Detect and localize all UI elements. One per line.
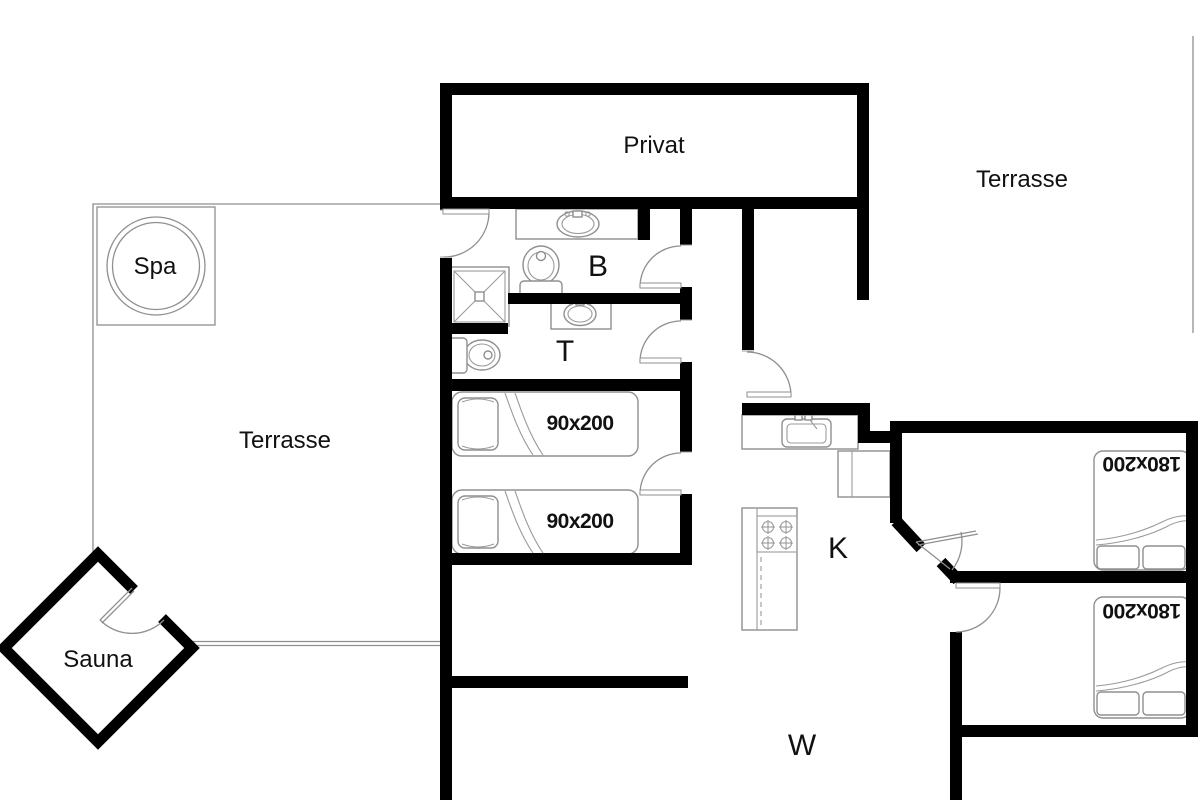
bathroom-door [640, 245, 692, 288]
room-label-spa: Spa [134, 253, 177, 281]
room-label-terrace-left: Terrasse [239, 427, 331, 455]
room-label-sauna: Sauna [63, 646, 132, 674]
bed-size-label-double-1: 180x200 [1103, 451, 1181, 475]
bathroom-sink-counter [516, 209, 638, 239]
room-label-bathroom: B [588, 250, 608, 284]
bathroom-toilet [520, 246, 562, 300]
bedroom2-door [956, 583, 1000, 632]
toilet-room-door [640, 320, 692, 363]
room-label-terrace-top: Terrasse [976, 166, 1068, 194]
entry-door-bathroom [440, 209, 489, 257]
kitchen-door [742, 351, 791, 397]
room-label-living: W [788, 729, 816, 763]
kitchen-island-stove [742, 508, 797, 630]
floorplan-drawing [0, 0, 1200, 800]
bed-size-label-single-1: 90x200 [546, 412, 613, 436]
kitchen-sink-counter [742, 415, 858, 449]
floorplan-canvas: Privat Terrasse Terrasse Spa Sauna B T K… [0, 0, 1200, 800]
kids-bedroom-door [640, 452, 692, 495]
hall-cabinet [838, 451, 890, 497]
bed-size-label-double-2: 180x200 [1103, 598, 1181, 622]
room-label-toilet: T [556, 335, 574, 369]
shower [450, 267, 509, 326]
room-label-privat: Privat [623, 132, 684, 160]
bed-size-label-single-2: 90x200 [546, 510, 613, 534]
room-label-kitchen: K [828, 532, 848, 566]
toilet-room-toilet [449, 338, 500, 373]
